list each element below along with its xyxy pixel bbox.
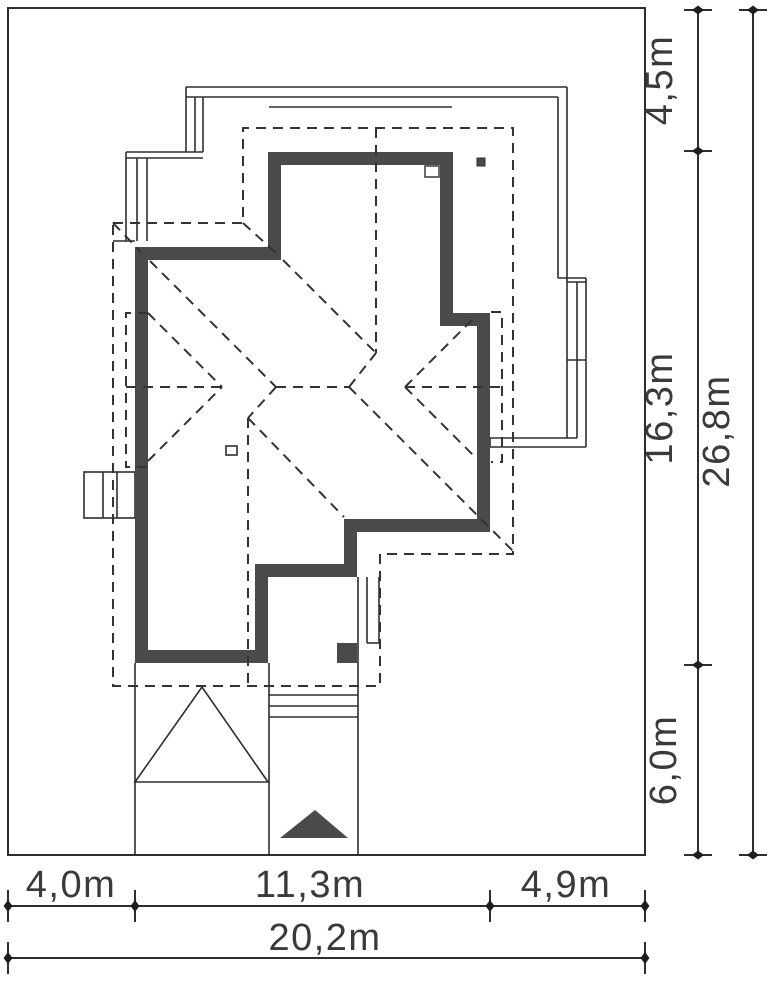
dim-label-bottom-2: 11,3m — [255, 864, 365, 906]
ground-details — [84, 472, 379, 855]
floor-plan-canvas: 4,5m 16,3m 6,0m 26,8m 4,0m 11,3m 4,9m 20… — [0, 0, 770, 982]
building-wall — [142, 159, 484, 657]
dim-label-bottom-1: 4,0m — [26, 864, 116, 906]
dim-label-bottom-total: 20,2m — [268, 917, 381, 959]
left-bay-outline — [84, 472, 135, 518]
dim-label-right-3: 6,0m — [643, 715, 685, 805]
dim-label-bottom-3: 4,9m — [521, 864, 611, 906]
dimension-right-total — [739, 6, 767, 860]
dim-label-right-1: 4,5m — [639, 35, 681, 125]
site-boundary — [8, 8, 645, 855]
entry-pillar — [337, 643, 357, 663]
chimney-square — [477, 158, 485, 166]
roof-eave-outline — [113, 87, 586, 447]
dim-label-right-total: 26,8m — [696, 374, 738, 487]
dim-label-right-2: 16,3m — [639, 351, 681, 464]
floor-plan-page: 4,5m 16,3m 6,0m 26,8m 4,0m 11,3m 4,9m 20… — [0, 0, 770, 982]
roof-vent-square — [226, 446, 237, 455]
entrance-arrow — [280, 810, 348, 838]
driveway-triangle-outline — [135, 687, 268, 782]
wall-notch — [425, 166, 439, 177]
